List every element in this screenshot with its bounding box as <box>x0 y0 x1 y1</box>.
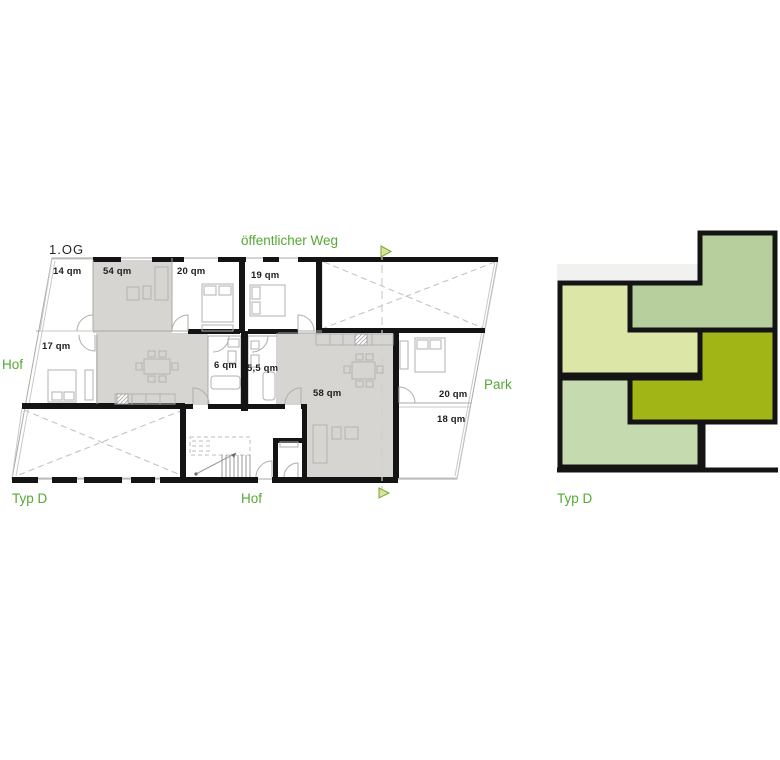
site-label-hof-left: Hof <box>2 358 23 372</box>
room-area-unit-b-bedroom-north: 19 qm <box>251 271 279 281</box>
bed-20-east <box>400 338 445 372</box>
scheme-type-label: Typ D <box>557 492 592 506</box>
room-area-unit-a-bedroom-west: 17 qm <box>42 342 70 352</box>
site-label-public-way: öffentlicher Weg <box>241 234 338 248</box>
garage-northeast <box>316 257 498 333</box>
plan-drawing <box>0 0 780 760</box>
plan-type-label: Typ D <box>12 492 47 506</box>
room-area-unit-b-living: 58 qm <box>313 389 341 399</box>
unit-b-fill <box>278 333 393 477</box>
axis-marker-bottom <box>379 488 389 498</box>
room-area-unit-b-bath: 5,5 qm <box>247 364 278 374</box>
axis-marker-top <box>381 246 391 257</box>
site-label-hof-bottom: Hof <box>241 492 262 506</box>
room-area-terrace-nw: 14 qm <box>53 267 81 277</box>
floor-plan-page: 1.OG öffentlicher Weg Hof Park Typ D Hof… <box>0 0 780 760</box>
scheme-diagram <box>557 233 778 470</box>
room-area-unit-b-bedroom-east: 20 qm <box>439 390 467 400</box>
garage-southwest <box>12 403 186 479</box>
scheme-unit-sage <box>630 233 775 330</box>
scheme-walkway-strip <box>557 264 700 280</box>
bed-17 <box>48 370 93 402</box>
room-area-unit-a-bedroom-north: 20 qm <box>177 267 205 277</box>
bed-20-top <box>202 284 233 331</box>
site-label-park: Park <box>484 378 512 392</box>
room-area-unit-a-living: 54 qm <box>103 267 131 277</box>
bed-19 <box>250 285 285 316</box>
room-area-terrace-se: 18 qm <box>437 415 465 425</box>
room-area-unit-a-bath: 6 qm <box>214 361 237 371</box>
floor-level-label: 1.OG <box>49 243 84 256</box>
